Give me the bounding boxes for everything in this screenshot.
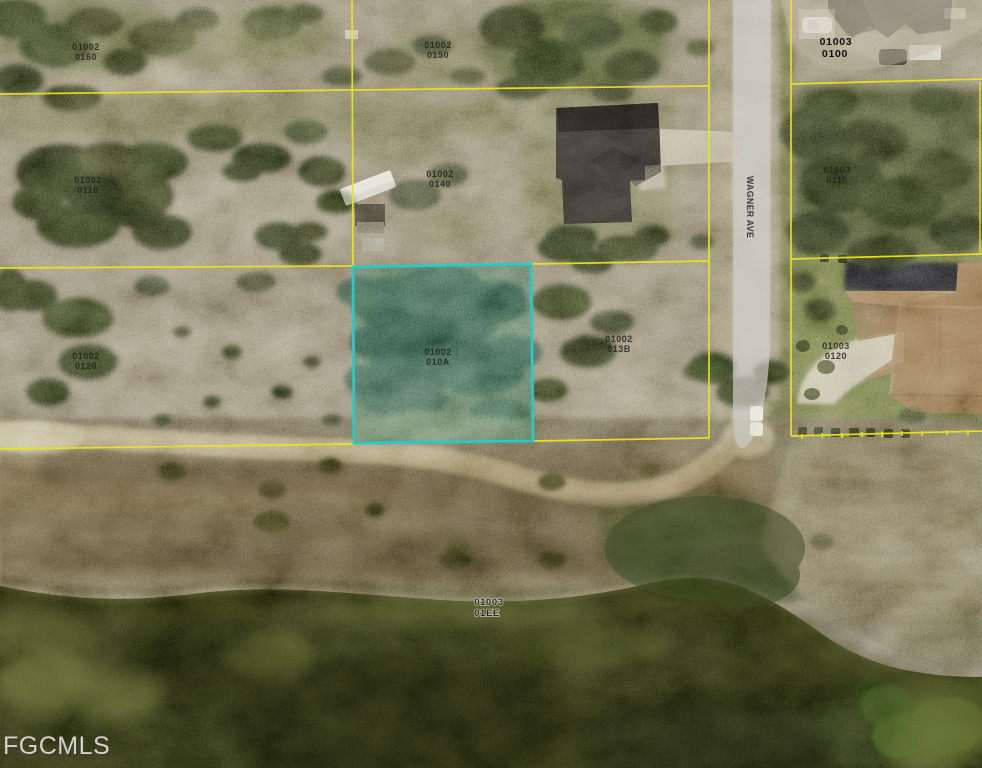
svg-text:FGCMLS: FGCMLS	[3, 732, 110, 760]
svg-text:01003: 01003	[823, 165, 851, 175]
svg-text:013B: 013B	[607, 344, 631, 354]
svg-text:01EE: 01EE	[474, 608, 500, 619]
svg-text:01003: 01003	[474, 597, 503, 608]
svg-text:01002: 01002	[424, 40, 452, 50]
svg-text:010A: 010A	[426, 357, 450, 367]
svg-text:01002: 01002	[72, 351, 100, 361]
svg-text:01003: 01003	[820, 36, 853, 48]
svg-text:0120: 0120	[75, 361, 97, 371]
svg-text:0110: 0110	[77, 185, 99, 195]
svg-text:0150: 0150	[427, 50, 449, 60]
svg-text:0100: 0100	[822, 48, 848, 60]
svg-text:0160: 0160	[75, 52, 97, 62]
svg-text:0120: 0120	[825, 351, 847, 361]
svg-text:01002: 01002	[424, 347, 452, 357]
svg-text:01002: 01002	[426, 169, 454, 179]
svg-text:01002: 01002	[74, 175, 102, 185]
svg-text:0110: 0110	[826, 175, 848, 185]
svg-text:WAGNER AVE: WAGNER AVE	[745, 176, 755, 238]
svg-text:01002: 01002	[605, 334, 633, 344]
svg-text:01003: 01003	[822, 341, 850, 351]
svg-text:0140: 0140	[429, 179, 451, 189]
svg-text:01002: 01002	[72, 42, 100, 52]
